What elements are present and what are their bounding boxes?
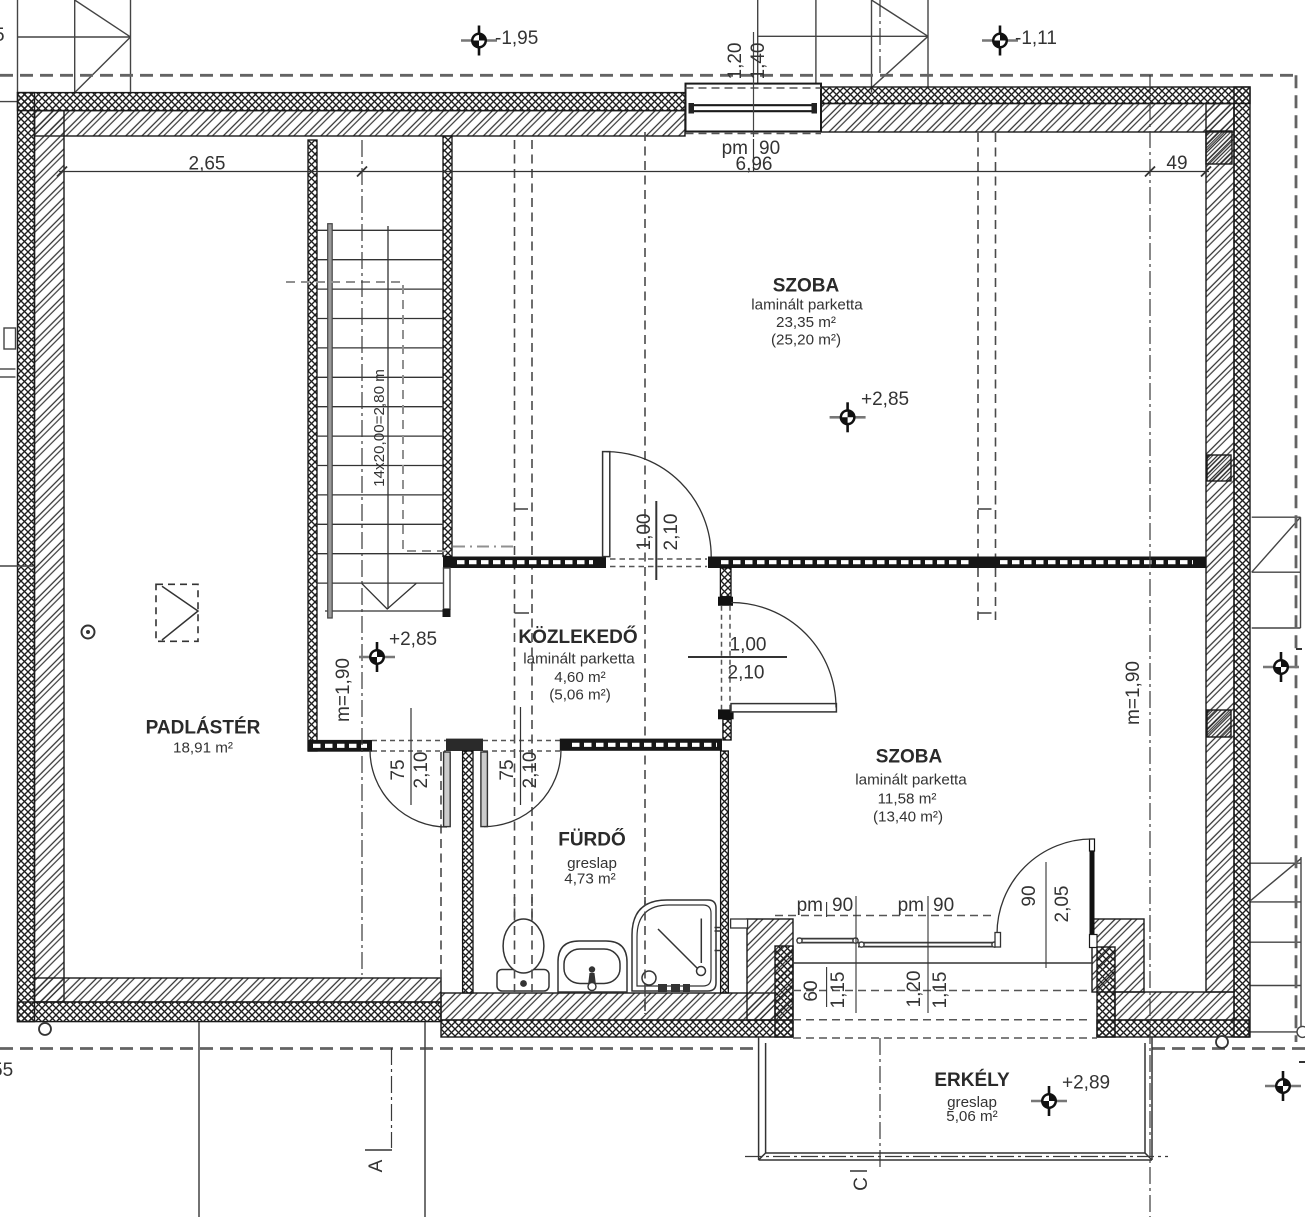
svg-text:6,96: 6,96 [736,154,773,175]
svg-text:+2,85: +2,85 [861,389,909,410]
svg-text:4,73 m²: 4,73 m² [564,871,616,888]
svg-text:5,06 m²: 5,06 m² [946,1108,998,1125]
svg-text:pm: pm [898,895,924,916]
svg-text:laminált parketta: laminált parketta [523,651,635,668]
svg-text:(5,06 m²): (5,06 m²) [549,687,611,704]
svg-text:5: 5 [0,25,5,46]
svg-text:11,58 m²: 11,58 m² [878,791,937,808]
svg-text:60: 60 [801,980,822,1001]
svg-text:1,20: 1,20 [904,971,925,1008]
svg-text:FÜRDŐ: FÜRDŐ [558,829,626,851]
svg-text:14x20,00=2,80 m: 14x20,00=2,80 m [371,369,388,487]
svg-text:laminált parketta: laminált parketta [855,772,967,789]
svg-text:pm: pm [797,895,823,916]
svg-text:2,10: 2,10 [728,663,765,684]
svg-text:1,20: 1,20 [725,43,746,80]
svg-text:2,10: 2,10 [661,514,682,551]
svg-text:49: 49 [1166,153,1187,174]
svg-text:75: 75 [388,759,409,780]
svg-text:18,91 m²: 18,91 m² [173,740,233,757]
svg-text:1,15: 1,15 [930,972,951,1009]
svg-text:2,10: 2,10 [520,752,541,789]
svg-text:laminált parketta: laminált parketta [751,297,863,314]
svg-text:(25,20 m²): (25,20 m²) [771,332,841,349]
svg-text:1,15: 1,15 [828,972,849,1009]
svg-text:+2,85: +2,85 [389,629,437,650]
svg-text:+2,89: +2,89 [1062,1073,1110,1094]
svg-text:2,10: 2,10 [411,752,432,789]
svg-text:1,00: 1,00 [634,514,655,551]
svg-text:PADLÁSTÉR: PADLÁSTÉR [146,717,261,739]
svg-text:A: A [366,1159,387,1172]
svg-text:-1,95: -1,95 [495,28,538,49]
svg-text:KÖZLEKEDŐ: KÖZLEKEDŐ [518,626,637,648]
svg-text:SZOBA: SZOBA [773,276,840,297]
svg-text:90: 90 [1019,885,1040,906]
svg-text:1,40: 1,40 [748,43,769,80]
svg-text:90: 90 [832,895,853,916]
svg-text:1,00: 1,00 [730,635,767,656]
svg-text:55: 55 [0,1060,13,1081]
svg-text:4,60 m²: 4,60 m² [554,669,606,686]
svg-text:75: 75 [497,759,518,780]
svg-text:SZOBA: SZOBA [876,747,943,768]
svg-text:23,35 m²: 23,35 m² [776,314,836,331]
svg-text:(13,40 m²): (13,40 m²) [873,809,943,826]
svg-text:2,05: 2,05 [1052,886,1073,923]
svg-text:m=1,90: m=1,90 [333,658,354,722]
svg-text:-1,11: -1,11 [1015,28,1057,49]
svg-text:ERKÉLY: ERKÉLY [934,1069,1010,1091]
svg-text:C: C [851,1177,872,1191]
svg-text:2,65: 2,65 [189,154,226,175]
svg-text:greslap: greslap [567,855,617,872]
svg-text:m=1,90: m=1,90 [1123,661,1144,725]
svg-text:90: 90 [933,895,954,916]
